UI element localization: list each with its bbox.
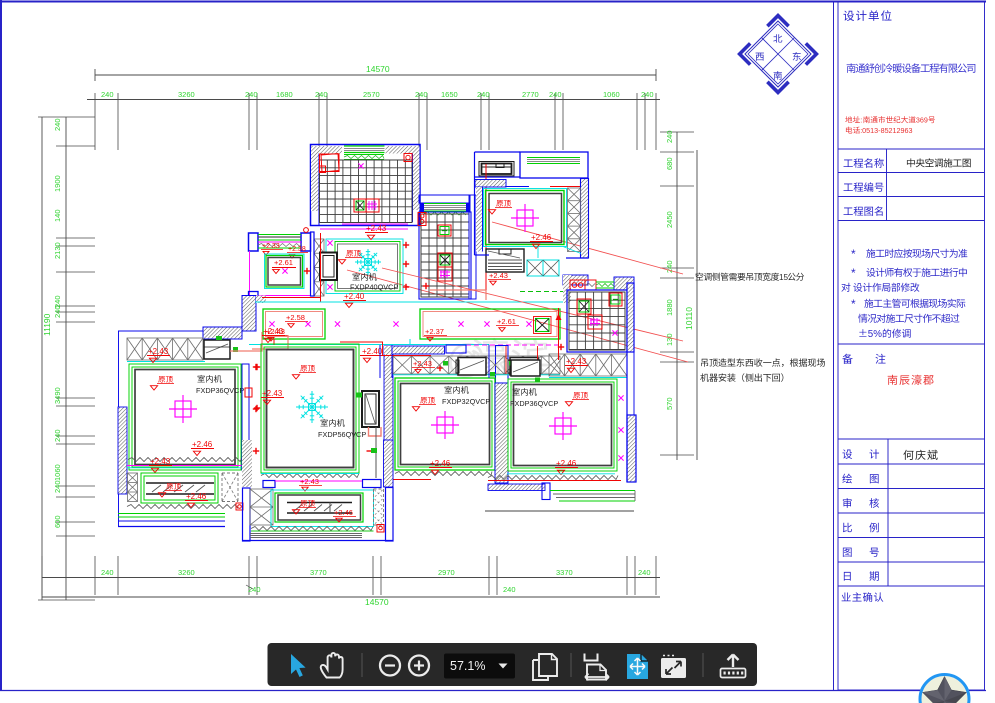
svg-text:1060: 1060 [603, 90, 620, 99]
svg-text:+2.43: +2.43 [300, 477, 319, 486]
svg-text:FXDP36QVCP: FXDP36QVCP [510, 399, 558, 408]
svg-text:600: 600 [53, 515, 62, 528]
svg-text:+2.40: +2.40 [344, 292, 365, 301]
svg-text:*: * [851, 266, 856, 280]
svg-text:3770: 3770 [310, 568, 327, 577]
svg-text:14570: 14570 [365, 597, 389, 607]
svg-text:680: 680 [665, 157, 674, 170]
svg-text:240: 240 [248, 585, 261, 594]
svg-text:2770: 2770 [522, 90, 539, 99]
svg-text:1880: 1880 [665, 299, 674, 316]
svg-text:+2.61: +2.61 [497, 317, 516, 326]
svg-text:240: 240 [53, 118, 62, 131]
svg-text:FXDP36QVCP: FXDP36QVCP [196, 386, 244, 395]
svg-text:+2.43: +2.43 [413, 359, 432, 368]
svg-text:1900: 1900 [53, 175, 62, 192]
svg-text:2970: 2970 [438, 568, 455, 577]
svg-text:3260: 3260 [178, 568, 195, 577]
svg-text::: : [860, 116, 862, 125]
svg-text:+2.37: +2.37 [425, 327, 444, 336]
svg-text:15: 15 [779, 273, 789, 282]
svg-text:+2.46: +2.46 [556, 459, 577, 468]
svg-text:240: 240 [477, 90, 490, 99]
svg-text:10110: 10110 [684, 307, 694, 330]
svg-text:240: 240 [101, 90, 114, 99]
svg-text:570: 570 [665, 397, 674, 410]
svg-text:FXDP56QVCP: FXDP56QVCP [318, 430, 366, 439]
svg-text:*: * [851, 247, 856, 261]
svg-text:240: 240 [665, 130, 674, 143]
svg-text:3490: 3490 [53, 387, 62, 404]
svg-text:2130: 2130 [53, 242, 62, 259]
svg-text:14570: 14570 [366, 64, 390, 74]
svg-text:3260: 3260 [178, 90, 195, 99]
svg-text:130: 130 [665, 333, 674, 346]
svg-text:1680: 1680 [276, 90, 293, 99]
svg-text:+2.43: +2.43 [148, 347, 169, 356]
svg-text:240: 240 [101, 568, 114, 577]
svg-text:+2.38: +2.38 [288, 246, 306, 253]
svg-text:5%: 5% [868, 329, 882, 340]
svg-text:+2.46: +2.46 [430, 459, 451, 468]
svg-text:2570: 2570 [363, 90, 380, 99]
svg-text:*: * [851, 297, 856, 311]
svg-text:+2.46: +2.46 [186, 492, 207, 501]
svg-text::0513-85212963: :0513-85212963 [860, 126, 912, 135]
svg-text:1650: 1650 [441, 90, 458, 99]
svg-text:240: 240 [641, 90, 654, 99]
svg-text:+2.43: +2.43 [262, 389, 283, 398]
svg-text:+2.46: +2.46 [531, 233, 552, 242]
svg-text:+2.43: +2.43 [366, 224, 387, 233]
svg-text:369: 369 [916, 116, 928, 125]
svg-text:+2.58: +2.58 [286, 313, 305, 322]
svg-text:240: 240 [638, 568, 651, 577]
svg-text:240: 240 [415, 90, 428, 99]
svg-text:3370: 3370 [556, 568, 573, 577]
svg-text:240: 240 [549, 90, 562, 99]
svg-text:57.1%: 57.1% [450, 659, 485, 673]
svg-text:240: 240 [245, 90, 258, 99]
svg-text:240: 240 [53, 429, 62, 442]
svg-text:140: 140 [53, 209, 62, 222]
svg-text:240: 240 [53, 305, 62, 318]
svg-text:FXDP40QVCP: FXDP40QVCP [350, 283, 398, 292]
svg-text:+2.43: +2.43 [150, 457, 171, 466]
svg-text:240: 240 [53, 480, 62, 493]
svg-text:+2.46: +2.46 [334, 508, 353, 517]
svg-text:240: 240 [315, 90, 328, 99]
svg-text:11190: 11190 [42, 313, 52, 336]
svg-text:+2.61: +2.61 [274, 258, 293, 267]
svg-text:240: 240 [503, 585, 516, 594]
svg-text:+2.46: +2.46 [192, 440, 213, 449]
svg-text:+2.43: +2.43 [566, 357, 587, 366]
svg-text:+2.33: +2.33 [262, 243, 280, 250]
svg-text:+2.43: +2.43 [263, 327, 284, 336]
svg-text:2450: 2450 [665, 211, 674, 228]
svg-text:FXDP32QVCP: FXDP32QVCP [442, 397, 490, 406]
svg-text:1060: 1060 [53, 464, 62, 481]
